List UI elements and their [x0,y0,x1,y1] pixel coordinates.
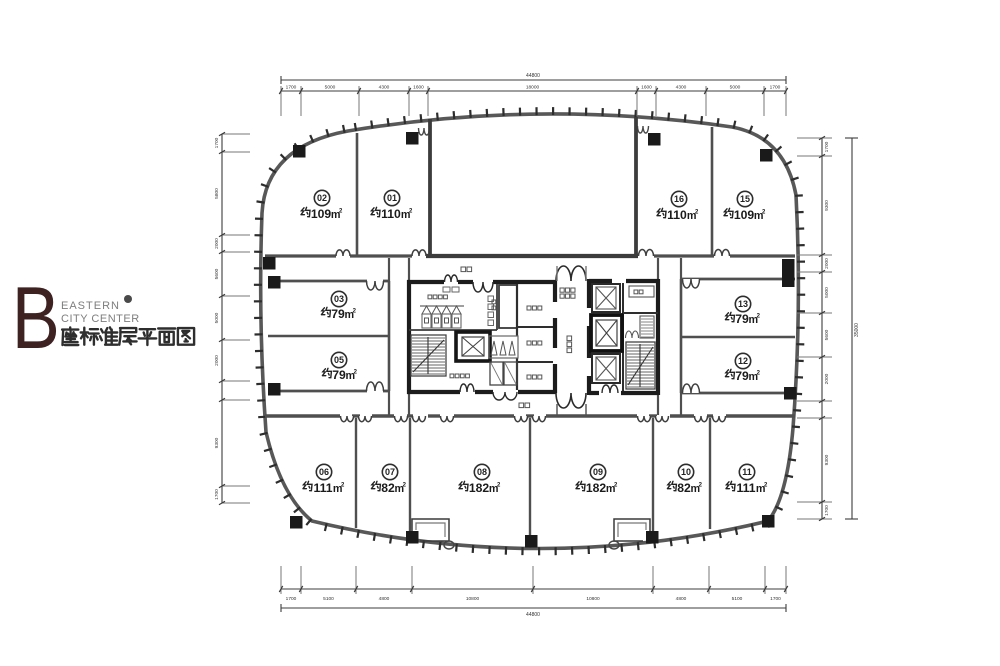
svg-text:1700: 1700 [770,85,781,91]
svg-text:1700: 1700 [824,141,830,152]
svg-text:1600: 1600 [641,85,652,91]
svg-text:110: 110 [667,208,687,222]
svg-text:18000: 18000 [526,85,540,91]
svg-text:05: 05 [334,355,344,365]
svg-text:5000: 5000 [325,85,336,91]
svg-text:1700: 1700 [824,505,830,516]
svg-text:1700: 1700 [214,489,220,500]
svg-text:10800: 10800 [466,596,480,602]
svg-text:79: 79 [331,307,345,321]
svg-text:35000: 35000 [854,323,860,337]
svg-text:111: 111 [314,481,333,495]
svg-text:82: 82 [677,481,691,495]
svg-text:9300: 9300 [824,454,830,465]
svg-text:182: 182 [586,481,607,495]
svg-text:79: 79 [332,368,346,382]
svg-text:CITY CENTER: CITY CENTER [61,313,140,325]
svg-text:111: 111 [737,481,756,495]
svg-text:15: 15 [740,194,750,204]
svg-text:4300: 4300 [676,85,687,91]
svg-text:9300: 9300 [214,437,220,448]
svg-text:44800: 44800 [526,73,540,79]
svg-text:2000: 2000 [824,373,830,384]
svg-text:5600: 5600 [214,268,220,279]
svg-text:5100: 5100 [323,596,334,602]
svg-text:10800: 10800 [586,596,600,602]
svg-text:03: 03 [334,294,344,304]
svg-text:16: 16 [674,194,684,204]
svg-text:4300: 4300 [379,85,390,91]
svg-text:109: 109 [734,208,755,222]
svg-text:109: 109 [311,207,332,221]
svg-text:5000: 5000 [824,287,830,298]
svg-text:10: 10 [681,467,691,477]
svg-text:4800: 4800 [676,596,687,602]
svg-text:01: 01 [387,193,397,203]
svg-text:09: 09 [593,467,603,477]
svg-text:5800: 5800 [214,188,220,199]
svg-text:08: 08 [477,467,487,477]
svg-text:02: 02 [317,193,327,203]
svg-text:1700: 1700 [286,596,297,602]
svg-text:2000: 2000 [214,238,220,249]
svg-text:44800: 44800 [526,612,540,618]
svg-text:5000: 5000 [214,312,220,323]
svg-text:1600: 1600 [413,85,424,91]
svg-text:5600: 5600 [824,329,830,340]
svg-text:9300: 9300 [824,200,830,211]
svg-text:1700: 1700 [770,596,781,602]
svg-text:13: 13 [738,299,748,309]
svg-text:07: 07 [385,467,395,477]
svg-text:1700: 1700 [286,85,297,91]
svg-text:12: 12 [738,356,748,366]
svg-text:5000: 5000 [730,85,741,91]
svg-text:2000: 2000 [824,258,830,269]
svg-text:82: 82 [381,481,395,495]
svg-text:182: 182 [469,481,490,495]
svg-text:EASTERN: EASTERN [61,300,120,312]
svg-text:110: 110 [381,207,401,221]
svg-text:5100: 5100 [732,596,743,602]
svg-text:B: B [12,269,60,367]
svg-text:1700: 1700 [214,137,220,148]
svg-text:79: 79 [735,369,749,383]
svg-text:06: 06 [319,467,329,477]
svg-text:4800: 4800 [379,596,390,602]
svg-text:2000: 2000 [214,355,220,366]
svg-text:11: 11 [742,467,752,477]
svg-text:79: 79 [735,312,749,326]
